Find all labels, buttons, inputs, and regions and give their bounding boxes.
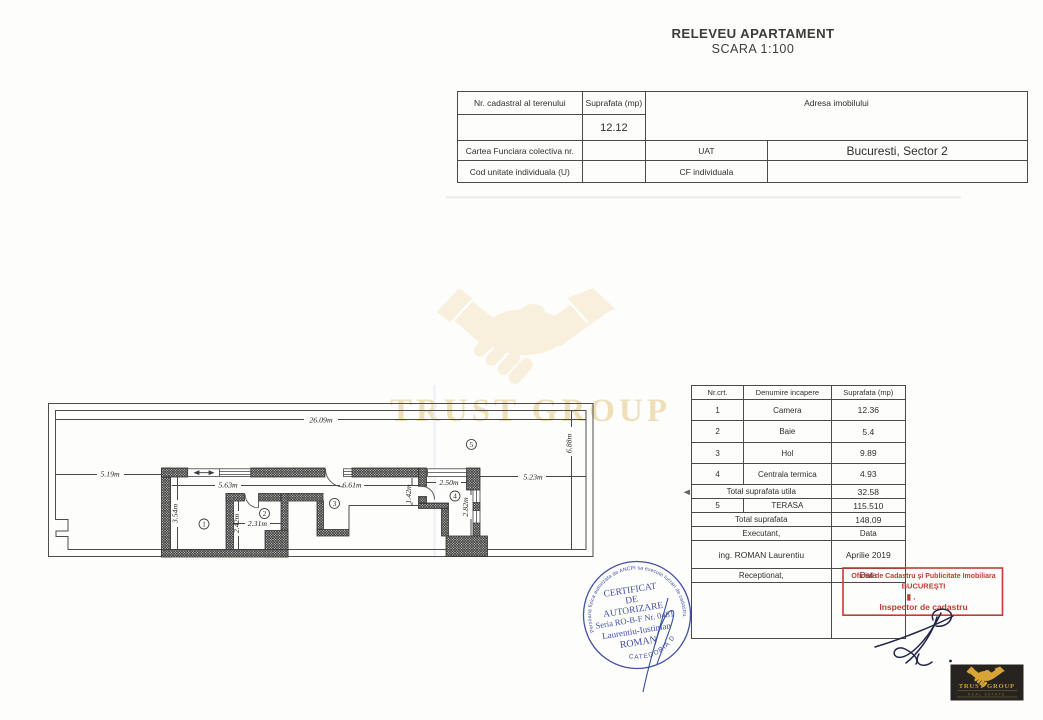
svg-text:Oficiul de Cadastru şi Publici: Oficiul de Cadastru şi Publicitate Imobi… — [851, 573, 995, 580]
svg-text:▮ .: ▮ . — [907, 593, 916, 602]
svg-text:TRUST GROUP: TRUST GROUP — [959, 683, 1015, 690]
svg-text:3.54m: 3.54m — [171, 503, 180, 524]
svg-text:5.63m: 5.63m — [218, 481, 238, 490]
svg-text:1: 1 — [202, 520, 206, 529]
svg-text:4: 4 — [453, 492, 457, 501]
svg-text:2.82m: 2.82m — [461, 497, 470, 517]
svg-text:5: 5 — [470, 440, 474, 449]
svg-text:Persoana fizica autorizata de: Persoana fizica autorizata de ANCPI sa e… — [0, 0, 688, 720]
svg-text:REAL ESTATE: REAL ESTATE — [968, 692, 1006, 696]
svg-text:5.23m: 5.23m — [523, 472, 543, 481]
svg-text:2.50m: 2.50m — [439, 478, 459, 487]
svg-text:6.61m: 6.61m — [342, 481, 362, 490]
svg-text:BUCUREŞTI: BUCUREŞTI — [902, 582, 946, 591]
svg-text:26.09m: 26.09m — [309, 415, 333, 424]
svg-text:3: 3 — [333, 499, 337, 508]
svg-text:1.42m: 1.42m — [404, 484, 413, 504]
svg-text:5.19m: 5.19m — [100, 470, 120, 479]
svg-text:2.31m: 2.31m — [248, 519, 268, 528]
svg-text:6.88m: 6.88m — [565, 433, 574, 453]
svg-text:Inspector de cadastru: Inspector de cadastru — [879, 602, 967, 612]
svg-text:2: 2 — [263, 509, 267, 518]
